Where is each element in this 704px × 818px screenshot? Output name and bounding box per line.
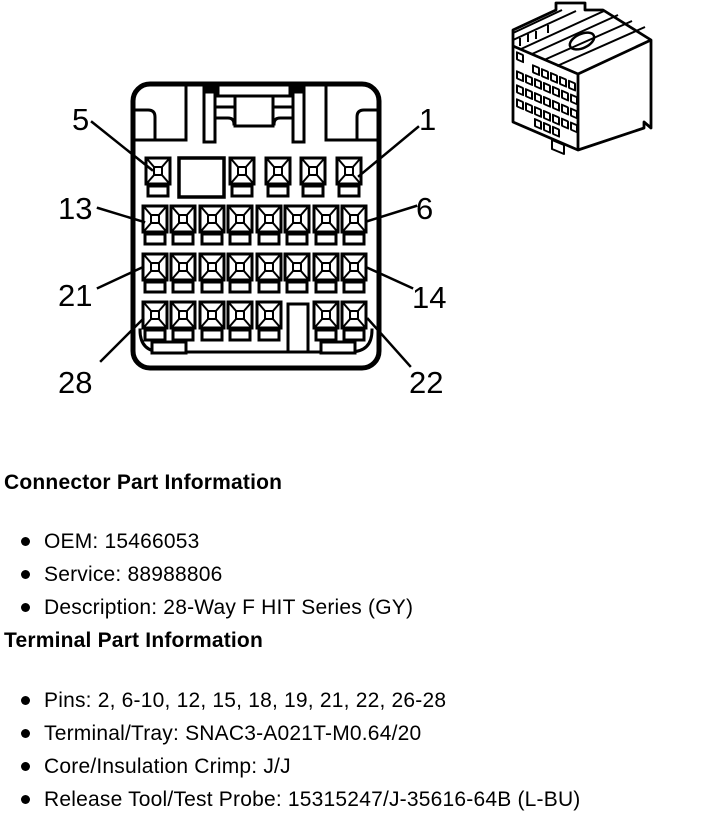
list-item-text: Pins: 2, 6-10, 12, 15, 18, 19, 21, 22, 2… [44, 689, 446, 712]
list-item-text: Release Tool/Test Probe: 15315247/J-3561… [44, 788, 581, 811]
pin-cavity [200, 254, 224, 292]
pin-number-labels: 5 1 13 6 21 14 28 22 [58, 102, 446, 400]
leader-line-5 [92, 122, 152, 170]
list-item: Terminal/Tray: SNAC3-A021T-M0.64/20 [0, 722, 704, 745]
bullet-icon [21, 570, 30, 579]
pin-cavity [314, 302, 338, 340]
bullet-icon [21, 696, 30, 705]
pin-cavity [228, 254, 252, 292]
pin-cavity [314, 206, 338, 244]
terminal-part-information-list: Pins: 2, 6-10, 12, 15, 18, 19, 21, 22, 2… [0, 689, 704, 811]
pin-cavity [314, 254, 338, 292]
pin-cavity [171, 254, 195, 292]
blank-key-square [179, 158, 224, 197]
list-item: Core/Insulation Crimp: J/J [0, 755, 704, 778]
pin-cavity [285, 254, 309, 292]
iso-silhouette [513, 3, 651, 150]
leader-line-14 [368, 268, 412, 288]
leader-line-1 [359, 127, 418, 176]
pin-label-21: 21 [58, 278, 92, 313]
bottom-foot-right [321, 342, 355, 353]
pin-cavity [228, 206, 252, 244]
bullet-icon [21, 795, 30, 804]
list-item-text: OEM: 15466053 [44, 530, 200, 553]
leader-line-28 [101, 319, 143, 361]
pin-cavity [342, 254, 366, 292]
top-right-corner-block [326, 85, 379, 140]
pin-cavity [266, 158, 290, 196]
pin-label-13: 13 [58, 191, 92, 226]
pin-cavity [257, 206, 281, 244]
list-item: Release Tool/Test Probe: 15315247/J-3561… [0, 788, 704, 811]
pin-cavity [146, 158, 170, 196]
pin-cavity [257, 302, 281, 340]
pin-cavity [285, 206, 309, 244]
pin-row-4 [143, 302, 366, 340]
keying-slot [288, 304, 308, 351]
leader-line-13 [98, 208, 144, 222]
pin-label-6: 6 [416, 191, 433, 226]
pin-cavity [171, 206, 195, 244]
pin-cavity [228, 302, 252, 340]
connector-diagram: 5 1 13 6 21 14 28 22 [0, 0, 704, 445]
connector-part-information-list: OEM: 15466053 Service: 88988806 Descript… [0, 530, 704, 619]
pin-cavity [200, 206, 224, 244]
pin-cavity [337, 158, 361, 196]
part-information: Connector Part Information OEM: 15466053… [0, 471, 704, 818]
pin-cavity [171, 302, 195, 340]
pin-row-1 [146, 158, 361, 197]
bottom-foot-left [152, 342, 186, 353]
list-item-text: Terminal/Tray: SNAC3-A021T-M0.64/20 [44, 722, 421, 745]
pin-row-2 [143, 206, 366, 244]
pin-cavity [230, 158, 254, 196]
iso-front-holes [517, 52, 577, 144]
pin-cavity [200, 302, 224, 340]
pin-label-1: 1 [419, 102, 436, 137]
list-item-text: Service: 88988806 [44, 563, 223, 586]
bullet-icon [21, 762, 30, 771]
bullet-icon [21, 729, 30, 738]
terminal-part-information-heading: Terminal Part Information [4, 629, 704, 652]
list-item: Description: 28-Way F HIT Series (GY) [0, 596, 704, 619]
pin-cavity [257, 254, 281, 292]
pin-cavity [143, 206, 167, 244]
pin-label-22: 22 [409, 365, 443, 400]
pin-label-5: 5 [72, 102, 89, 137]
iso-top-ribs [513, 10, 645, 66]
connector-3d-view [513, 3, 651, 154]
connector-info-page: 5 1 13 6 21 14 28 22 [0, 0, 704, 818]
bullet-icon [21, 603, 30, 612]
list-item: OEM: 15466053 [0, 530, 704, 553]
pin-cavity [342, 206, 366, 244]
center-latch-tab [215, 84, 293, 126]
top-left-corner-block [133, 85, 186, 140]
pin-label-14: 14 [412, 280, 446, 315]
bullet-icon [21, 537, 30, 546]
pin-cavity [301, 158, 325, 196]
list-item: Service: 88988806 [0, 563, 704, 586]
pin-label-28: 28 [58, 365, 92, 400]
connector-face-view [92, 84, 418, 368]
pin-row-3 [143, 254, 366, 292]
leader-line-21 [98, 267, 143, 288]
leader-line-6 [368, 206, 416, 221]
list-item: Pins: 2, 6-10, 12, 15, 18, 19, 21, 22, 2… [0, 689, 704, 712]
pin-cavity [143, 254, 167, 292]
list-item-text: Core/Insulation Crimp: J/J [44, 755, 291, 778]
pin-cavity [342, 302, 366, 340]
pin-cavity [143, 302, 167, 340]
connector-part-information-heading: Connector Part Information [4, 471, 704, 494]
list-item-text: Description: 28-Way F HIT Series (GY) [44, 596, 413, 619]
